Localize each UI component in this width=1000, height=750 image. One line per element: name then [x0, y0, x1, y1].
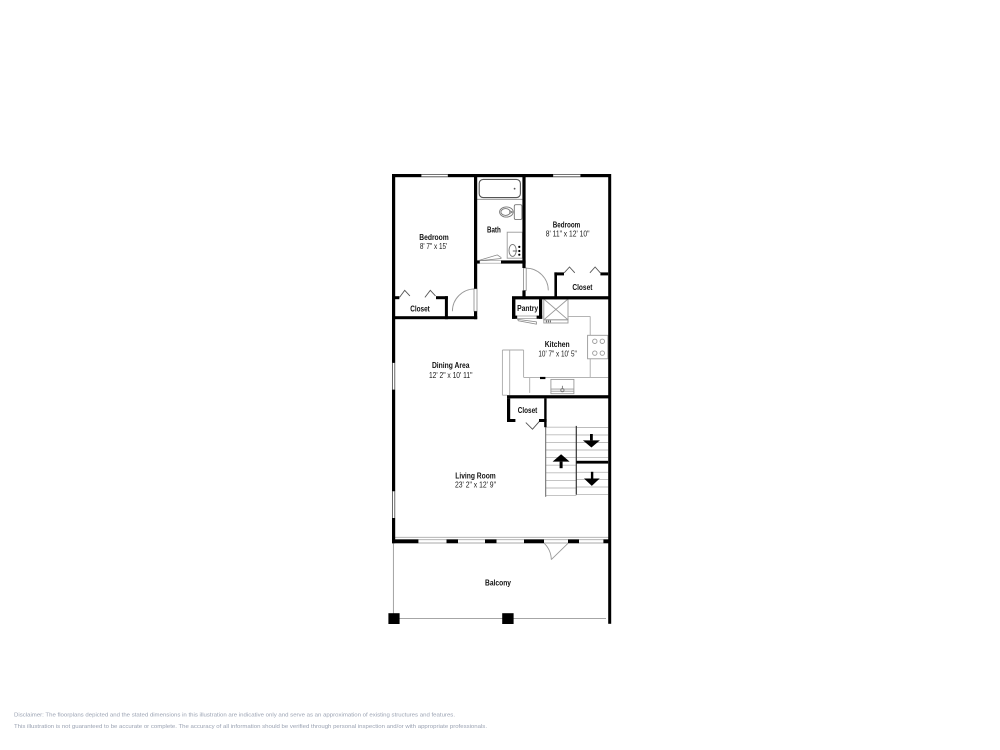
svg-text:Bath: Bath — [487, 225, 501, 234]
svg-text:10' 7" x 10' 5": 10' 7" x 10' 5" — [538, 348, 576, 358]
svg-text:Disclaimer: The floorplans dep: Disclaimer: The floorplans depicted and … — [14, 712, 455, 718]
svg-text:23' 2" x 12' 9": 23' 2" x 12' 9" — [455, 479, 496, 489]
svg-text:12' 2" x 10' 11": 12' 2" x 10' 11" — [429, 370, 473, 380]
svg-text:Balcony: Balcony — [485, 578, 512, 587]
svg-text:Closet: Closet — [518, 406, 538, 415]
svg-text:This illustration is not guara: This illustration is not guaranteed to b… — [14, 724, 487, 730]
svg-text:Closet: Closet — [572, 283, 592, 292]
svg-text:Pantry: Pantry — [517, 304, 539, 313]
svg-text:8' 11" x 12' 10": 8' 11" x 12' 10" — [546, 229, 590, 239]
svg-text:Dining Area: Dining Area — [432, 361, 470, 370]
svg-text:Closet: Closet — [410, 305, 430, 314]
svg-text:8' 7" x 15': 8' 7" x 15' — [420, 241, 448, 251]
